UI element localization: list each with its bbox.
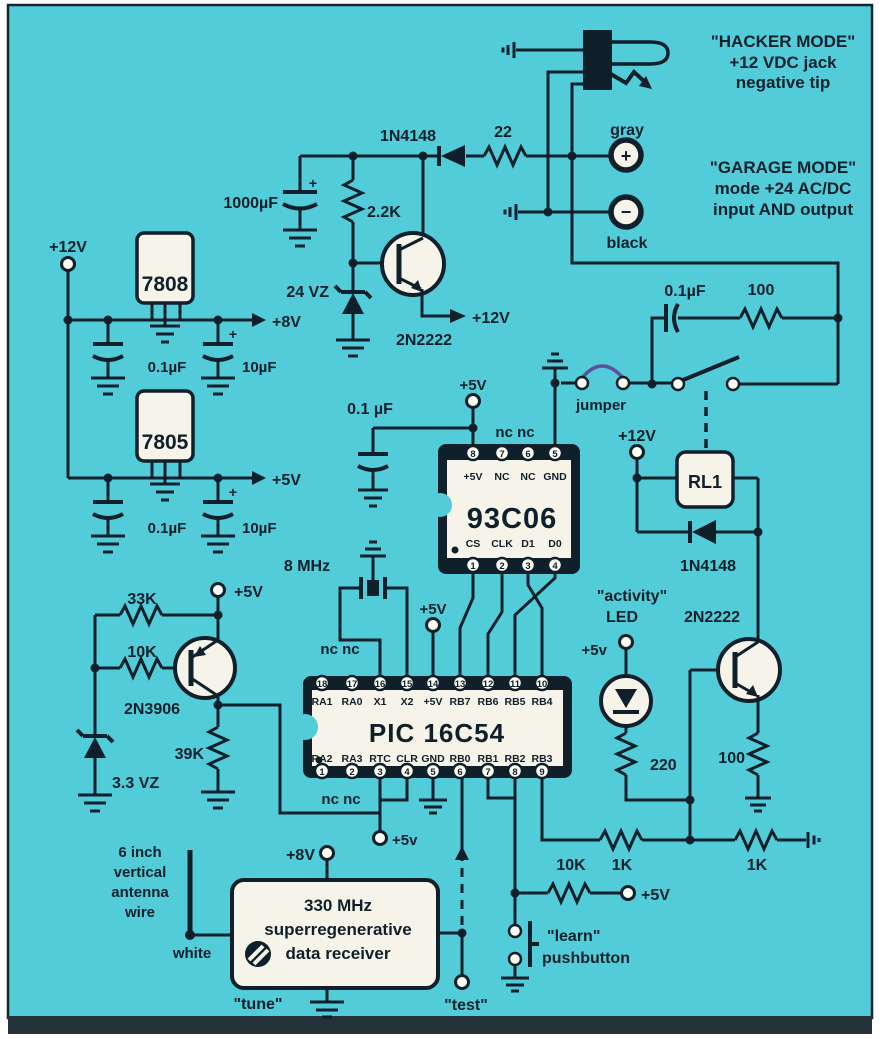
learn-label-line1: "learn" (547, 928, 600, 945)
led-supply-label: +5v (582, 642, 608, 659)
white-wire-label: white (172, 945, 211, 962)
resistor-10k-pullup-label: 10K (556, 857, 586, 874)
pic-pin18: 18 (317, 679, 328, 690)
tune-trimmer-icon (245, 941, 271, 967)
antenna-note-line1: 6 inch (118, 844, 161, 861)
relay-contact-right (727, 378, 739, 390)
led-label: LED (606, 609, 638, 626)
pic-rb6-label: RB6 (477, 696, 498, 708)
tune-label: "tune" (234, 996, 283, 1013)
capacitor-10uf-b-polarity: + (229, 484, 237, 500)
eeprom-pin5-label: GND (543, 471, 567, 483)
pic-rb5-label: RB5 (504, 696, 525, 708)
receiver-line3: data receiver (286, 944, 391, 963)
flyback-diode-label: 1N4148 (680, 558, 736, 575)
zener-24v-label: 24 VZ (286, 284, 329, 301)
v12-in-terminal (62, 258, 75, 271)
jumper-post-left (576, 377, 588, 389)
eeprom-pin6-label: NC (520, 471, 536, 483)
garage-mode-line3: input AND output (713, 200, 853, 219)
resistor-1k-pulldown-label: 1K (747, 857, 768, 874)
receiver-line1: 330 MHz (304, 896, 372, 915)
v12-in-label: +12V (49, 239, 87, 256)
zener-3.3v-label: 3.3 VZ (112, 775, 159, 792)
pic-pin16: 16 (375, 679, 386, 690)
resistor-220-label: 220 (650, 757, 677, 774)
pic-pin1: 1 (319, 767, 325, 778)
antenna-note-line4: wire (124, 904, 155, 921)
garage-mode-line1: "GARAGE MODE" (710, 158, 856, 177)
scan-strip (8, 1016, 872, 1034)
learn-supply-terminal (622, 887, 635, 900)
led-supply-terminal (620, 636, 633, 649)
activity-label: "activity" (597, 588, 667, 605)
pic-pin6: 6 (457, 767, 462, 778)
v8-out-label: +8V (272, 314, 301, 331)
pic-5v-label: +5V (424, 696, 443, 708)
eeprom-pin7: 7 (499, 449, 504, 460)
antenna-note-line2: vertical (114, 864, 167, 881)
jumper-post-right (617, 377, 629, 389)
bypass-capacitor-label: 0.1 µF (347, 401, 393, 418)
led-icon (601, 676, 651, 726)
receiver-supply-label: +8V (286, 847, 315, 864)
eeprom-pin2-label: CLK (491, 538, 513, 550)
pic-pin2: 2 (349, 767, 354, 778)
eeprom-notch (428, 493, 452, 517)
learn-label-line2: pushbutton (542, 950, 630, 967)
capacitor-10uf-a-label: 10µF (242, 359, 277, 376)
eeprom-name: 93C06 (467, 503, 557, 535)
pic-pin14: 14 (428, 679, 439, 690)
hacker-mode-line1: "HACKER MODE" (711, 32, 856, 51)
capacitor-1000uf-polarity: + (309, 175, 317, 191)
pic-notch (292, 714, 318, 740)
pic-rb4-label: RB4 (531, 696, 552, 708)
eeprom-pin1-dot (452, 547, 459, 554)
black-terminal-minus: − (621, 202, 632, 222)
pic-pin3: 3 (377, 767, 382, 778)
pic-pin4: 4 (404, 767, 410, 778)
resistor-1k-base-label: 1K (612, 857, 633, 874)
pic-nc-top-note: nc nc (320, 641, 359, 658)
pic-name: PIC 16C54 (369, 718, 505, 748)
receiver-supply-terminal (321, 847, 334, 860)
relay-coil-label: RL1 (688, 472, 722, 492)
crystal-label: 8 MHz (284, 558, 330, 575)
eeprom-pin6: 6 (525, 449, 530, 460)
eeprom-pin4-label: D0 (548, 538, 562, 550)
eeprom-supply-label: +5V (459, 377, 486, 394)
resistor-39k-label: 39K (175, 746, 205, 763)
eeprom-pin8-label: +5V (464, 471, 483, 483)
pic-rb7-label: RB7 (449, 696, 470, 708)
rtc-supply-label: +5v (392, 832, 418, 849)
learn-supply-label: +5V (641, 887, 670, 904)
pic-pin17: 17 (347, 679, 358, 690)
eeprom-pin4: 4 (552, 561, 558, 572)
pic-pin11: 11 (510, 679, 521, 690)
gray-label: gray (610, 122, 644, 139)
pic-pin10: 10 (537, 679, 548, 690)
capacitor-0.1uf-b-label: 0.1µF (148, 520, 187, 537)
gray-terminal-plus: + (621, 146, 632, 166)
pic-supply-label: +5V (419, 601, 446, 618)
eeprom-pin7-label: NC (494, 471, 510, 483)
pic-x2-label: X2 (401, 696, 414, 708)
eeprom-pin1-label: CS (466, 538, 481, 550)
relay-contact-left (672, 378, 684, 390)
eeprom-nc-note: nc nc (495, 424, 534, 441)
pic-pin7: 7 (485, 767, 490, 778)
capacitor-0.1uf-a-label: 0.1µF (148, 359, 187, 376)
schematic-page: "HACKER MODE" +12 VDC jack negative tip … (0, 0, 886, 1039)
hacker-mode-line2: +12 VDC jack (729, 53, 837, 72)
pic-pin8: 8 (512, 767, 517, 778)
transistor-2n3906-label: 2N3906 (124, 701, 180, 718)
regulator-7805-label: 7805 (142, 431, 189, 454)
rtc-supply-terminal (374, 832, 387, 845)
eeprom-pin5: 5 (552, 449, 558, 460)
capacitor-10uf-b-label: 10µF (242, 520, 277, 537)
resistor-33k-label: 33K (127, 591, 157, 608)
eeprom-supply-terminal (467, 395, 480, 408)
resistor-2.2k-label: 2.2K (367, 204, 401, 221)
v5-out-label: +5V (272, 472, 301, 489)
jumper-label: jumper (575, 397, 626, 414)
emitter-resistor-label: 100 (718, 750, 745, 767)
pic-nc-bottom-note: nc nc (321, 791, 360, 808)
eeprom-pin3-label: D1 (521, 538, 535, 550)
pic-ra0-label: RA0 (341, 696, 362, 708)
pic-pin5: 5 (430, 767, 436, 778)
eeprom-pin3: 3 (525, 561, 530, 572)
eeprom-pin8: 8 (470, 449, 475, 460)
eeprom-pin1: 1 (470, 561, 476, 572)
driver-transistor-label: 2N2222 (684, 609, 740, 626)
pic-pin13: 13 (455, 679, 466, 690)
hacker-mode-line3: negative tip (736, 73, 830, 92)
resistor-22-label: 22 (494, 124, 512, 141)
receiver-line2: superregenerative (264, 920, 411, 939)
brownout-supply-terminal (212, 584, 225, 597)
pic-ra1-label: RA1 (311, 696, 332, 708)
resistor-10k-label: 10K (127, 644, 157, 661)
test-label: "test" (444, 997, 488, 1014)
diode-1n4148-top-label: 1N4148 (380, 128, 436, 145)
capacitor-1000uf-label: 1000µF (223, 195, 278, 212)
test-terminal (456, 976, 469, 989)
capacitor-10uf-a-polarity: + (229, 326, 237, 342)
pic-pin15: 15 (402, 679, 413, 690)
relay-v12-terminal (631, 446, 644, 459)
antenna-note-line3: antenna (111, 884, 169, 901)
pic-supply-terminal (427, 619, 440, 632)
garage-mode-line2: mode +24 AC/DC (715, 179, 852, 198)
pic-pin12: 12 (483, 679, 494, 690)
transistor-2n2222-top-label: 2N2222 (396, 332, 452, 349)
regulator-7808-label: 7808 (142, 273, 189, 296)
pic-x1-label: X1 (374, 696, 387, 708)
eeprom-pin2: 2 (499, 561, 504, 572)
snubber-capacitor-label: 0.1µF (664, 283, 705, 300)
v12-out-label: +12V (472, 310, 510, 327)
relay-v12-label: +12V (618, 428, 656, 445)
brownout-supply-label: +5V (234, 584, 263, 601)
black-label: black (607, 235, 648, 252)
pic-pin9: 9 (539, 767, 544, 778)
snubber-resistor-label: 100 (748, 282, 775, 299)
dc-jack-body (583, 30, 612, 90)
